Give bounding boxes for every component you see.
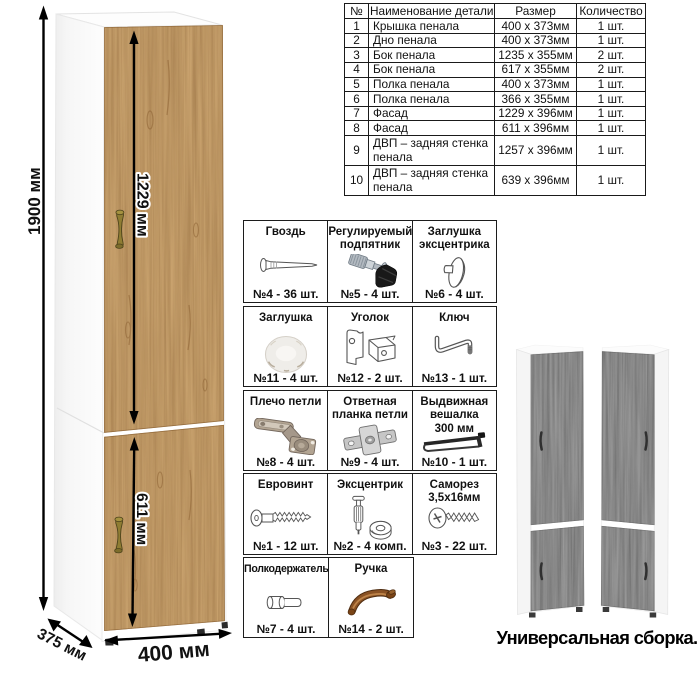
- svg-text:1900 мм: 1900 мм: [25, 167, 44, 235]
- svg-text:611 мм: 611 мм: [133, 493, 150, 545]
- svg-text:1229 мм: 1229 мм: [134, 173, 151, 237]
- svg-text:400 мм: 400 мм: [137, 638, 211, 667]
- svg-text:375 мм: 375 мм: [34, 625, 89, 664]
